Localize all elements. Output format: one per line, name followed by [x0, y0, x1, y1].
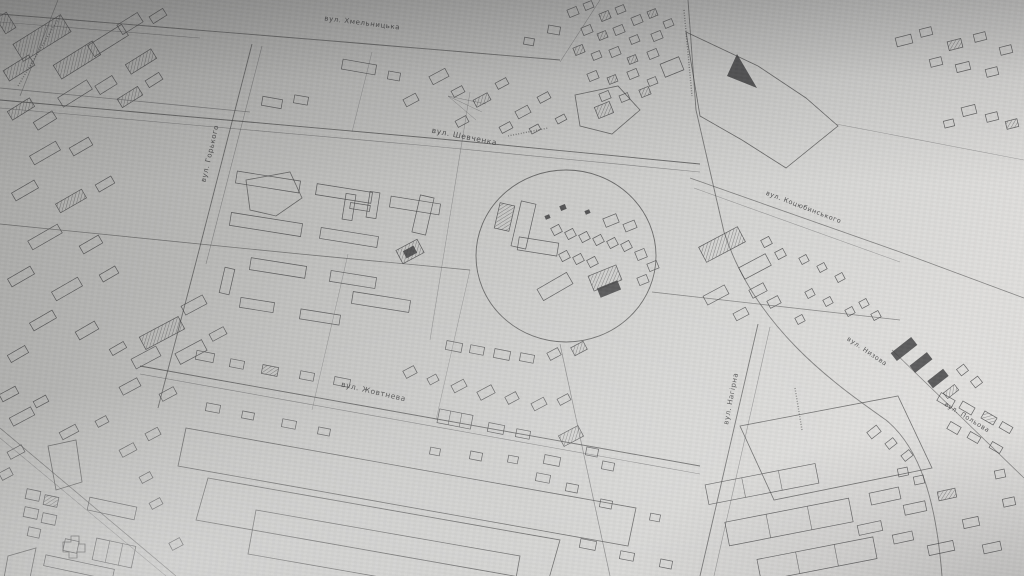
map-drawing: вул. Хмельницькавул. Шевченкавул. Горько… — [0, 0, 1024, 576]
street-label-shevchenka: вул. Шевченка — [431, 126, 498, 147]
street-label-nahirna: вул. Нагірна — [722, 372, 740, 425]
street-label-horkoho: вул. Горького — [200, 124, 221, 183]
stadium-circle — [476, 170, 656, 342]
field-outlines — [4, 32, 932, 576]
map-paper: вул. Хмельницькавул. Шевченкавул. Горько… — [0, 0, 1024, 576]
street-labels: вул. Хмельницькавул. Шевченкавул. Горько… — [200, 14, 992, 434]
map-photo: вул. Хмельницькавул. Шевченкавул. Горько… — [0, 0, 1024, 576]
street-label-nyzova: вул. Низова — [845, 335, 888, 368]
street-label-khmelnytska: вул. Хмельницька — [324, 14, 401, 31]
illegible-fine-print — [18, 10, 802, 430]
building-footprints — [0, 1, 1019, 576]
street-label-kotsiubynskoho: вул. Коцюбинського — [765, 189, 843, 225]
street-lines — [0, 0, 1024, 576]
street-label-zhovtneva: вул. Жовтнева — [340, 380, 407, 404]
